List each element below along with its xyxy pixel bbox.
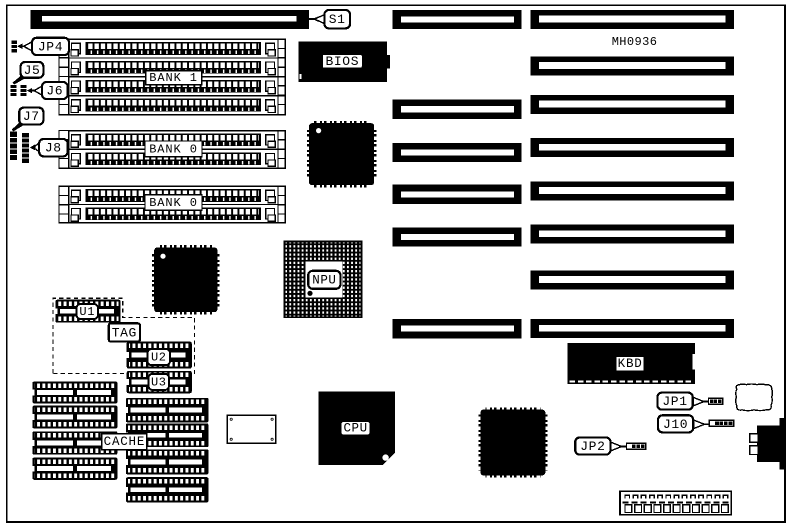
svg-text:JP4: JP4 (38, 39, 63, 54)
svg-text:J6: J6 (46, 84, 63, 99)
svg-text:BANK 0: BANK 0 (149, 196, 198, 210)
svg-text:TAG: TAG (112, 326, 137, 341)
svg-text:BANK 0: BANK 0 (149, 142, 198, 156)
svg-text:JP2: JP2 (580, 439, 605, 454)
svg-text:MH0936: MH0936 (612, 35, 658, 49)
svg-text:J8: J8 (45, 141, 62, 156)
svg-text:CPU: CPU (343, 422, 367, 436)
svg-text:NPU: NPU (312, 273, 336, 287)
svg-text:KBD: KBD (618, 357, 643, 371)
svg-text:U2: U2 (151, 351, 167, 365)
svg-text:BANK 1: BANK 1 (149, 71, 198, 85)
svg-text:U1: U1 (79, 305, 95, 319)
svg-text:CACHE: CACHE (104, 435, 146, 449)
svg-text:JP1: JP1 (662, 394, 687, 409)
svg-text:U3: U3 (151, 375, 167, 389)
svg-text:J7: J7 (23, 109, 40, 124)
svg-text:S1: S1 (329, 12, 346, 27)
svg-text:BIOS: BIOS (325, 54, 359, 69)
svg-text:J5: J5 (24, 63, 41, 78)
svg-text:J10: J10 (663, 417, 688, 432)
